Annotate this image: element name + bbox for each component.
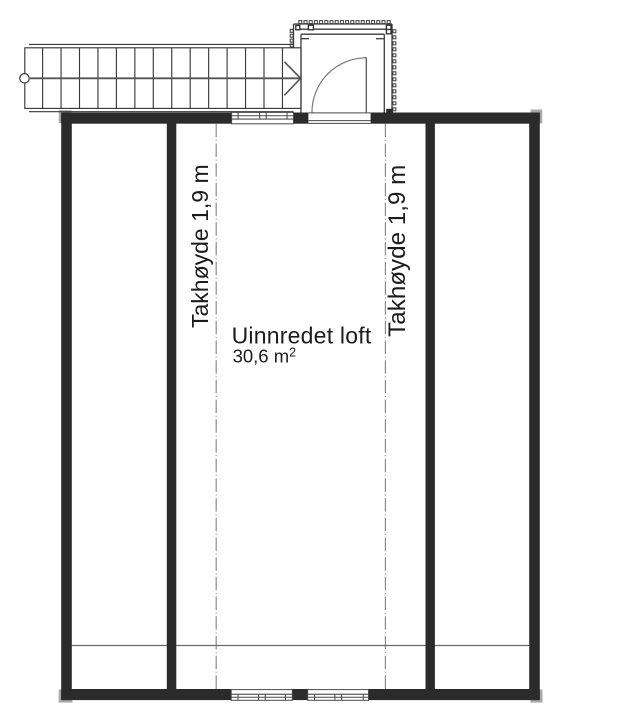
svg-text:Takhøyde 1,9 m: Takhøyde 1,9 m bbox=[187, 164, 213, 328]
svg-text:30,6 m2: 30,6 m2 bbox=[233, 346, 297, 367]
svg-text:Takhøyde 1,9 m: Takhøyde 1,9 m bbox=[384, 165, 411, 337]
